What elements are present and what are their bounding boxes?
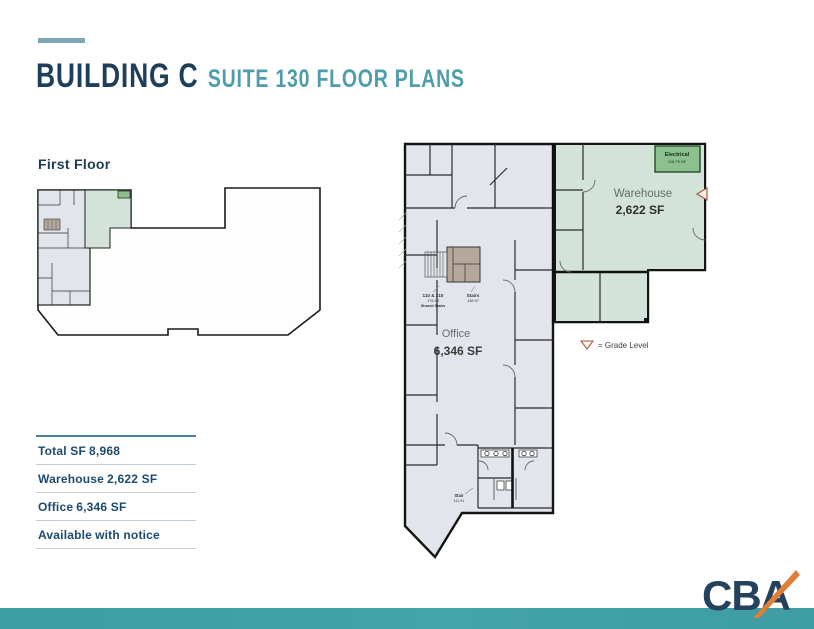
electrical-area: 116.75 SF: [668, 159, 687, 164]
mini-electrical-room: [118, 191, 130, 198]
stat-label: Office: [38, 500, 73, 514]
svg-text:138.97: 138.97: [467, 299, 479, 303]
stat-row-total: Total SF8,968: [36, 437, 196, 465]
stats-panel: Total SF8,968 Warehouse2,622 SF Office6,…: [36, 435, 196, 549]
first-floor-heading: First Floor: [38, 156, 111, 172]
suite-floor-plan: Electrical 116.75 SF Warehouse 2,622 SF …: [395, 140, 725, 570]
stat-row-warehouse: Warehouse2,622 SF: [36, 465, 196, 493]
stat-row-availability: Availablewith notice: [36, 521, 196, 549]
office-area-label: 6,346 SF: [434, 344, 483, 358]
svg-text:Stair: Stair: [454, 493, 464, 498]
stat-value: 8,968: [89, 444, 120, 458]
warehouse-area-label: 2,622 SF: [616, 203, 665, 217]
footer-teal-bar: [0, 608, 814, 629]
grade-level-legend-text: = Grade Level: [598, 341, 649, 350]
electrical-label: Electrical: [665, 152, 690, 158]
stat-label: Total SF: [38, 444, 86, 458]
cba-logo: CBA: [700, 570, 810, 618]
svg-text:Stairs: Stairs: [467, 293, 480, 298]
suite-subtitle: SUITE 130 FLOOR PLANS: [208, 65, 465, 94]
office-label: Office: [442, 328, 471, 340]
stat-row-office: Office6,346 SF: [36, 493, 196, 521]
page-title: BUILDING C SUITE 130 FLOOR PLANS: [36, 57, 465, 96]
grade-level-legend: = Grade Level: [581, 341, 649, 350]
svg-text:176.13: 176.13: [427, 299, 439, 303]
stat-label: Available: [38, 528, 92, 542]
mini-office-area: [38, 190, 90, 305]
stat-value: 2,622 SF: [107, 472, 157, 486]
electrical-room: Electrical 116.75 SF: [655, 146, 700, 172]
svg-text:Shared Stairs: Shared Stairs: [421, 304, 445, 308]
grade-level-legend-icon: [581, 341, 593, 349]
building-title: BUILDING C: [36, 57, 198, 96]
svg-text:110 & 210: 110 & 210: [423, 293, 444, 298]
wall-post: [644, 318, 649, 323]
stat-value: 6,346 SF: [76, 500, 126, 514]
title-accent-dash: [38, 38, 85, 43]
svg-text:111.91: 111.91: [454, 499, 464, 503]
warehouse-label: Warehouse: [614, 188, 672, 200]
stat-label: Warehouse: [38, 472, 104, 486]
stat-value: with notice: [95, 528, 160, 542]
flyer-page: BUILDING C SUITE 130 FLOOR PLANS First F…: [0, 0, 814, 629]
overview-floor-plan: [30, 183, 322, 351]
